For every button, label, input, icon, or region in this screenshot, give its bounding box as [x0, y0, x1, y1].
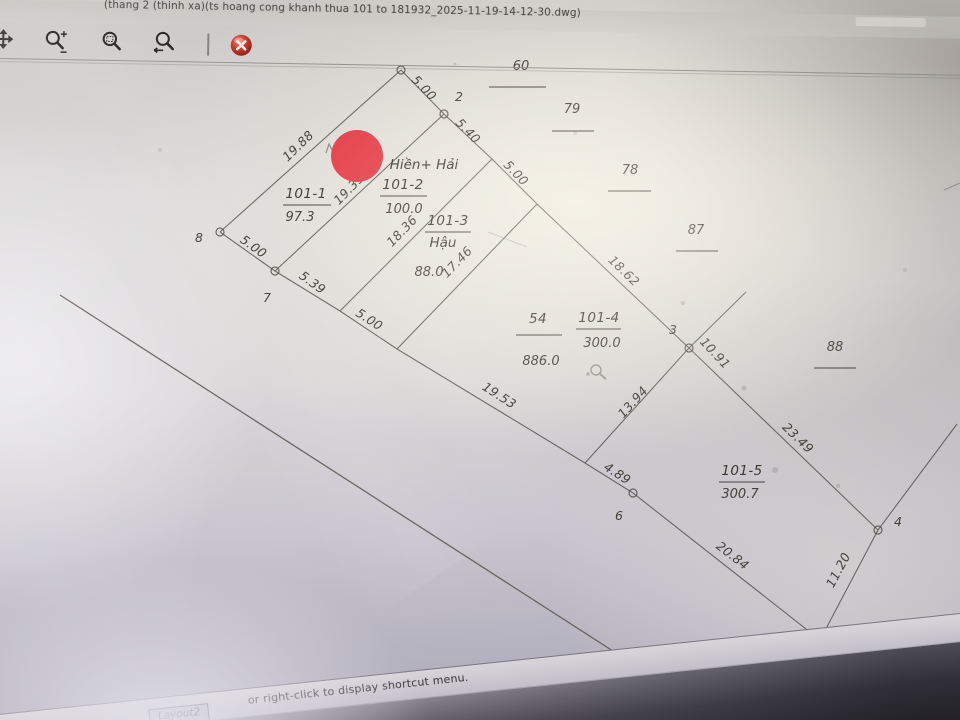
close-icon	[227, 31, 255, 59]
red-marker-dot	[331, 130, 383, 182]
owner-label: Hậu	[430, 235, 457, 251]
adjacent-lot-label: 78	[622, 163, 639, 178]
point-number-label: 2	[455, 89, 463, 104]
toolbar-separator	[207, 34, 209, 56]
parcel-area-label: 886.0	[522, 354, 559, 369]
parcel-area-label: 300.7	[721, 487, 759, 502]
dimension-label: 10.91	[697, 334, 733, 372]
adjacent-lot-label: 87	[688, 223, 705, 238]
dimension-labels: 19.88 19.35 18.36 17.46 18.62 5.00 5.40 …	[237, 72, 853, 590]
dimension-label: 19.88	[279, 127, 316, 164]
dimension-label: 5.39	[296, 268, 328, 297]
layout-tab[interactable]: Layout2	[148, 703, 211, 720]
dimension-label: 20.84	[713, 538, 752, 573]
close-button[interactable]	[227, 31, 253, 59]
window-controls-smudge	[856, 17, 926, 27]
parcel-area-label: 300.0	[583, 336, 620, 351]
point-number-label: 6	[615, 508, 623, 523]
dimension-label: 23.49	[780, 419, 817, 456]
dimension-label: 11.20	[823, 550, 854, 590]
toolbar	[0, 24, 300, 63]
dimension-label: 18.62	[606, 252, 643, 289]
adjacent-lot-label: 79	[564, 102, 581, 117]
dimension-label: 19.53	[480, 379, 519, 412]
parcel-id-label: 101-3	[427, 213, 468, 229]
parcel-id-label: 101-2	[382, 177, 423, 193]
point-number-label: 4	[894, 514, 902, 529]
parcel-area-label: 100.0	[385, 202, 422, 217]
dimension-label: 5.00	[237, 232, 269, 261]
parcel-id-label: 101-4	[578, 310, 619, 326]
parcel-area-label: 88.0	[415, 265, 444, 280]
hidden-text-fragment	[326, 144, 332, 153]
point-number-label: 8	[195, 230, 203, 245]
parcel-id-label: 54	[529, 311, 547, 327]
zoom-cursor-icon	[591, 365, 606, 379]
parcel-id-label: 101-5	[721, 463, 762, 479]
pan-icon[interactable]	[0, 27, 17, 55]
zoom-realtime-icon[interactable]	[43, 28, 69, 56]
zoom-previous-icon[interactable]	[151, 30, 177, 58]
point-number-label: 3	[669, 322, 677, 337]
adjacent-lot-label: 88	[827, 340, 844, 355]
screen-photo: (thang 2 (thinh xa)(ts hoang cong khanh …	[0, 0, 960, 720]
cad-drawing[interactable]: 19.88 19.35 18.36 17.46 18.62 5.00 5.40 …	[0, 0, 960, 720]
dimension-label: 5.00	[353, 305, 386, 333]
dimension-label: 13.94	[615, 383, 651, 421]
point-number-labels: 2 3 4 6 7 8	[195, 89, 902, 529]
parcel-id-label: 101-1	[285, 186, 326, 202]
point-number-label: 7	[263, 290, 271, 305]
parcel-area-label: 97.3	[286, 210, 315, 225]
vertex-markers	[216, 66, 882, 534]
dimension-label: 18.36	[383, 212, 420, 249]
dimension-label: 5.40	[453, 115, 484, 146]
zoom-window-icon[interactable]	[99, 29, 125, 57]
owner-label: Hiền+ Hải	[390, 156, 459, 173]
layout-tab-label: Layout2	[157, 706, 200, 720]
